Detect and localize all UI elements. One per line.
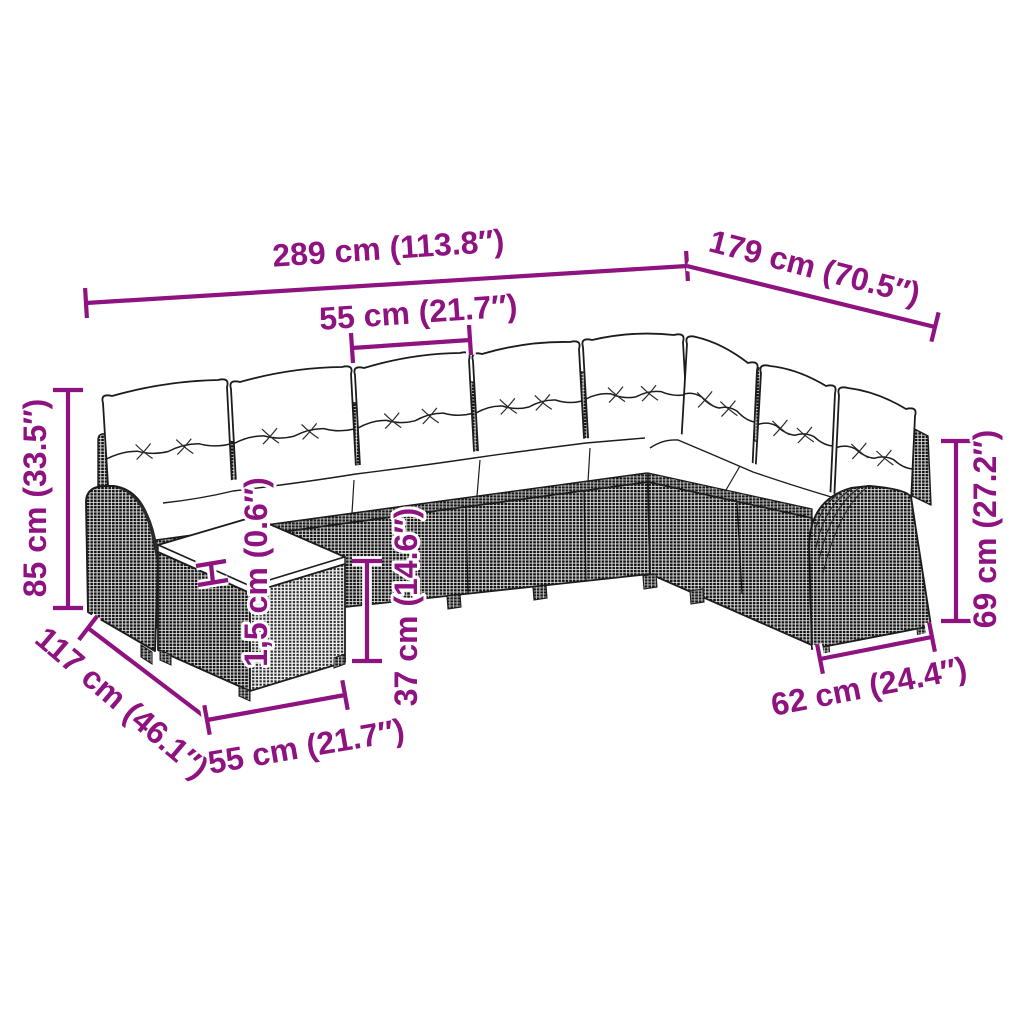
svg-text:1,5 cm (0.6″): 1,5 cm (0.6″) (238, 477, 274, 667)
svg-text:85 cm (33.5″): 85 cm (33.5″) (17, 399, 53, 598)
svg-text:55 cm (21.7″): 55 cm (21.7″) (205, 712, 407, 781)
svg-text:69 cm (27.2″): 69 cm (27.2″) (967, 430, 1003, 629)
svg-text:62 cm (24.4″): 62 cm (24.4″) (768, 650, 970, 723)
svg-text:289 cm (113.8″): 289 cm (113.8″) (271, 222, 505, 273)
svg-text:37 cm (14.6″): 37 cm (14.6″) (388, 508, 424, 707)
svg-text:55 cm (21.7″): 55 cm (21.7″) (318, 287, 519, 337)
